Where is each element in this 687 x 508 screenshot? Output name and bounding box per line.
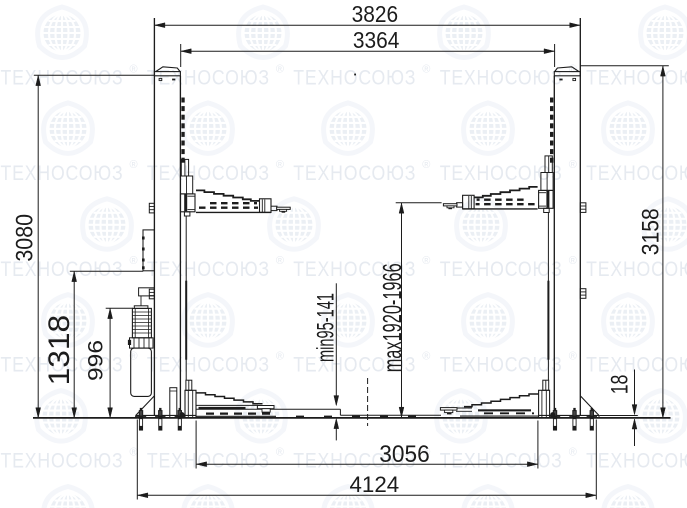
- svg-text:ТЕХНОСОЮЗ: ТЕХНОСОЮЗ: [1, 66, 124, 90]
- svg-text:3158: 3158: [637, 208, 664, 255]
- svg-text:®: ®: [422, 255, 430, 267]
- svg-text:ТЕХНОСОЮЗ: ТЕХНОСОЮЗ: [147, 161, 270, 185]
- svg-text:ТЕХНОСОЮЗ: ТЕХНОСОЮЗ: [293, 161, 416, 185]
- svg-text:ТЕХНОСОЮЗ: ТЕХНОСОЮЗ: [147, 353, 270, 377]
- svg-text:ТЕХНОСОЮЗ: ТЕХНОСОЮЗ: [586, 353, 687, 377]
- svg-text:®: ®: [276, 446, 284, 458]
- svg-text:ТЕХНОСОЮЗ: ТЕХНОСОЮЗ: [440, 161, 563, 185]
- svg-text:®: ®: [276, 255, 284, 267]
- svg-text:ТЕХНОСОЮЗ: ТЕХНОСОЮЗ: [440, 353, 563, 377]
- svg-text:®: ®: [422, 351, 430, 363]
- svg-text:®: ®: [422, 159, 430, 171]
- svg-text:®: ®: [569, 446, 577, 458]
- svg-text:ТЕХНОСОЮЗ: ТЕХНОСОЮЗ: [586, 66, 687, 90]
- svg-text:®: ®: [130, 159, 138, 171]
- svg-text:®: ®: [130, 446, 138, 458]
- svg-text:ТЕХНОСОЮЗ: ТЕХНОСОЮЗ: [147, 257, 270, 281]
- svg-text:ТЕХНОСОЮЗ: ТЕХНОСОЮЗ: [293, 66, 416, 90]
- svg-text:®: ®: [130, 64, 138, 76]
- svg-text:®: ®: [569, 351, 577, 363]
- svg-text:ТЕХНОСОЮЗ: ТЕХНОСОЮЗ: [586, 257, 687, 281]
- svg-text:®: ®: [422, 64, 430, 76]
- svg-text:ТЕХНОСОЮЗ: ТЕХНОСОЮЗ: [440, 66, 563, 90]
- svg-text:3056: 3056: [379, 441, 430, 468]
- svg-text:ТЕХНОСОЮЗ: ТЕХНОСОЮЗ: [1, 448, 124, 472]
- svg-text:3826: 3826: [352, 1, 399, 27]
- svg-text:996: 996: [84, 340, 107, 381]
- svg-text:®: ®: [569, 159, 577, 171]
- svg-text:®: ®: [276, 351, 284, 363]
- svg-text:1318: 1318: [43, 315, 76, 386]
- svg-text:®: ®: [130, 255, 138, 267]
- svg-text:max1920-1966: max1920-1966: [377, 263, 407, 372]
- svg-text:4124: 4124: [350, 472, 400, 497]
- svg-text:18: 18: [607, 375, 634, 395]
- svg-text:®: ®: [569, 255, 577, 267]
- svg-text:ТЕХНОСОЮЗ: ТЕХНОСОЮЗ: [147, 448, 270, 472]
- svg-text:®: ®: [276, 64, 284, 76]
- svg-text:ТЕХНОСОЮЗ: ТЕХНОСОЮЗ: [440, 257, 563, 281]
- svg-text:ТЕХНОСОЮЗ: ТЕХНОСОЮЗ: [147, 66, 270, 90]
- svg-text:3080: 3080: [12, 214, 39, 262]
- svg-text:min95-141: min95-141: [313, 293, 340, 362]
- svg-text:ТЕХНОСОЮЗ: ТЕХНОСОЮЗ: [440, 448, 563, 472]
- svg-text:®: ®: [276, 159, 284, 171]
- svg-text:ТЕХНОСОЮЗ: ТЕХНОСОЮЗ: [586, 448, 687, 472]
- svg-text:3364: 3364: [353, 27, 400, 53]
- svg-text:ТЕХНОСОЮЗ: ТЕХНОСОЮЗ: [586, 161, 687, 185]
- svg-text:ТЕХНОСОЮЗ: ТЕХНОСОЮЗ: [1, 161, 124, 185]
